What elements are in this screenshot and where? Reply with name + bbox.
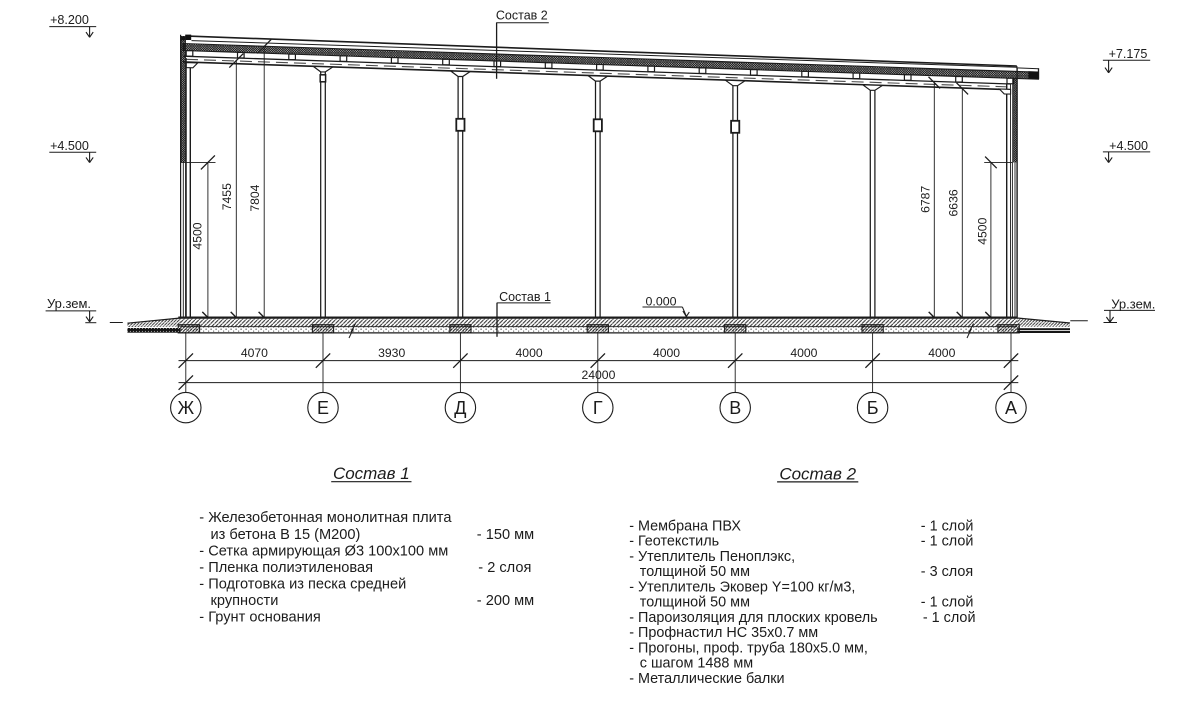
svg-text:4000: 4000	[928, 346, 955, 360]
svg-text:- 1 слой: - 1 слой	[921, 534, 974, 550]
svg-text:4000: 4000	[653, 346, 680, 360]
svg-text:4500: 4500	[190, 222, 204, 249]
svg-text:- Утеплитель Пеноплэкс,: - Утеплитель Пеноплэкс,	[629, 549, 795, 565]
svg-text:4070: 4070	[241, 346, 268, 360]
svg-text:4000: 4000	[516, 346, 543, 360]
svg-text:- Пленка полиэтиленовая: - Пленка полиэтиленовая	[199, 560, 373, 576]
svg-text:- 2 слоя: - 2 слоя	[478, 560, 531, 576]
svg-text:крупности: крупности	[211, 593, 279, 609]
svg-text:из бетона В 15 (М200): из бетона В 15 (М200)	[211, 527, 361, 543]
svg-text:толщиной 50 мм: толщиной 50 мм	[640, 595, 750, 611]
svg-text:- Профнастил НС 35х0.7 мм: - Профнастил НС 35х0.7 мм	[629, 625, 818, 641]
svg-text:А: А	[1005, 398, 1017, 418]
svg-text:- Подготовка из песка средней: - Подготовка из песка средней	[199, 576, 406, 592]
svg-text:7804: 7804	[248, 184, 262, 211]
svg-text:Состав 1: Состав 1	[333, 464, 410, 483]
svg-text:Б: Б	[867, 398, 879, 418]
svg-text:- 200 мм: - 200 мм	[477, 593, 534, 609]
svg-text:6787: 6787	[919, 186, 933, 213]
svg-text:+7.175: +7.175	[1109, 47, 1148, 61]
svg-text:4000: 4000	[790, 346, 817, 360]
svg-text:Состав 2: Состав 2	[779, 465, 856, 484]
svg-text:- Пароизоляция для плоских кро: - Пароизоляция для плоских кровель	[629, 610, 877, 626]
svg-text:4500: 4500	[975, 217, 989, 244]
svg-text:+4.500: +4.500	[50, 139, 89, 153]
svg-text:0.000: 0.000	[645, 294, 676, 308]
svg-text:Ж: Ж	[177, 398, 194, 418]
svg-text:Е: Е	[317, 398, 329, 418]
svg-text:+8.200: +8.200	[50, 13, 89, 27]
svg-text:- Металлические балки: - Металлические балки	[629, 671, 784, 687]
svg-text:Состав 1: Состав 1	[499, 290, 551, 304]
svg-text:3930: 3930	[378, 346, 405, 360]
svg-text:6636: 6636	[947, 189, 961, 216]
svg-text:толщиной 50 мм: толщиной 50 мм	[640, 564, 750, 580]
svg-text:- Сетка армирующая Ø3 100х100: - Сетка армирующая Ø3 100х100 мм	[199, 543, 448, 559]
svg-text:- 1 слой: - 1 слой	[923, 610, 976, 626]
svg-text:7455: 7455	[220, 183, 234, 210]
svg-text:- Мембрана ПВХ: - Мембрана ПВХ	[629, 518, 741, 534]
svg-text:Г: Г	[593, 398, 603, 418]
svg-text:- Грунт основания: - Грунт основания	[199, 610, 320, 626]
svg-text:+4.500: +4.500	[1109, 139, 1148, 153]
svg-text:В: В	[729, 398, 741, 418]
svg-text:24000: 24000	[581, 368, 615, 382]
svg-text:Состав 2: Состав 2	[496, 9, 548, 23]
svg-text:- 150 мм: - 150 мм	[477, 527, 534, 543]
svg-text:- Геотекстиль: - Геотекстиль	[629, 534, 719, 550]
svg-text:- Железобетонная монолитная п: - Железобетонная монолитная плита	[199, 510, 452, 526]
svg-text:- 3 слоя: - 3 слоя	[921, 564, 973, 580]
svg-text:- Прогоны, проф. труба 180х5.0: - Прогоны, проф. труба 180х5.0 мм,	[629, 640, 868, 656]
svg-text:- 1 слой: - 1 слой	[921, 595, 974, 611]
svg-text:- 1 слой: - 1 слой	[921, 518, 974, 534]
svg-text:Ур.зем.: Ур.зем.	[47, 296, 91, 311]
svg-text:Ур.зем.: Ур.зем.	[1111, 296, 1155, 311]
svg-text:Д: Д	[454, 398, 466, 418]
svg-text:- Утеплитель Эковер Y=100 кг/м: - Утеплитель Эковер Y=100 кг/м3,	[629, 579, 855, 595]
svg-text:с шагом 1488 мм: с шагом 1488 мм	[640, 656, 753, 672]
